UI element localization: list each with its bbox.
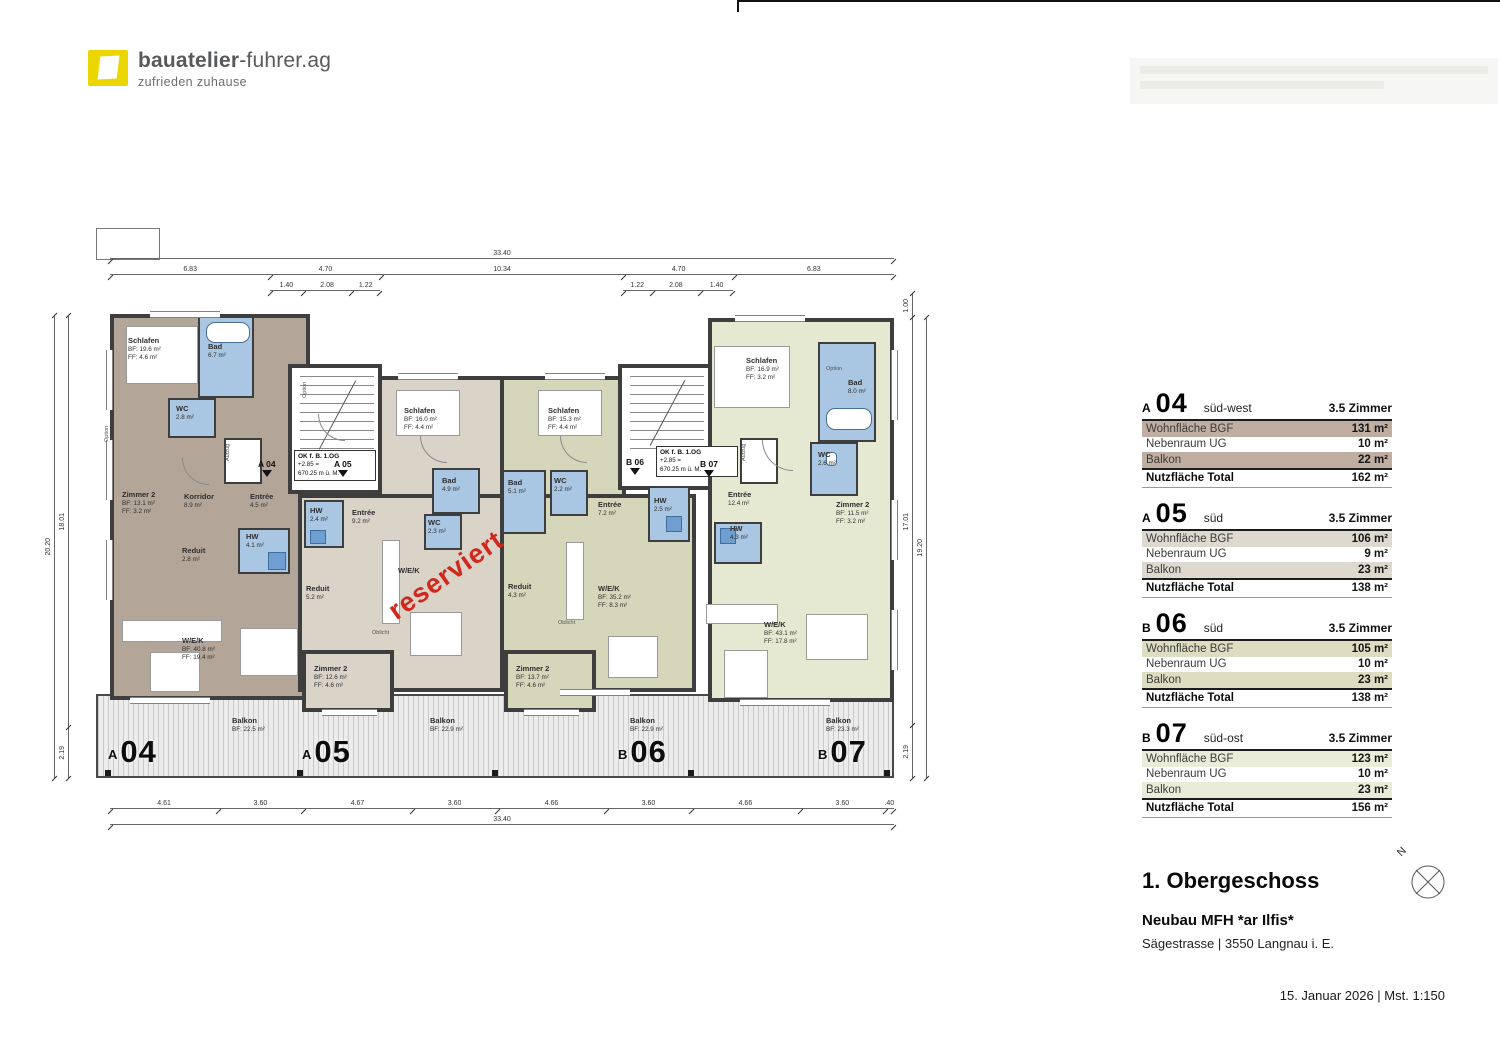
dim-segment: 4.70 [623,264,733,274]
row-label: Wohnfläche BGF [1146,533,1233,545]
marker-triangle-icon [338,470,348,477]
table-row-total: Nutzfläche Total138 m² [1142,688,1392,708]
logo-cube-icon [88,50,128,86]
dim-value: 6.83 [183,266,197,273]
dim-segment: 1.22 [623,280,652,290]
dim-value: 1.22 [359,282,373,289]
dim-value: 3.60 [836,800,850,807]
window [891,350,898,420]
table-row: Balkon23 m² [1142,562,1392,578]
unit-number: 06 [630,740,666,764]
dim-value: 4.70 [672,266,686,273]
dim-segment: 2.08 [303,280,352,290]
unit-number: 07 [830,740,866,764]
dining-table [150,652,200,692]
table-row: Nebenraum UG10 m² [1142,437,1392,453]
unit-prefix: B [818,747,827,762]
dim-value: 4.61 [157,800,171,807]
dim-segment: 1.40 [700,280,733,290]
dim-value: 10.34 [493,266,511,273]
row-value: 162 m² [1352,472,1388,484]
balcony-post [297,770,303,776]
table-row-total: Nutzfläche Total156 m² [1142,798,1392,818]
row-label: Nebenraum UG [1146,438,1227,450]
compass-icon [1406,860,1450,904]
dim-segment: 10.34 [381,264,624,274]
row-value: 156 m² [1352,802,1388,814]
bed-furniture [396,390,460,436]
row-label: Nebenraum UG [1146,548,1227,560]
bathtub-icon [826,408,872,430]
table-header: A 04 süd-west 3.5 Zimmer [1142,392,1392,421]
row-label: Nutzfläche Total [1146,582,1234,594]
dim-segment: 3.60 [218,798,303,808]
date-and-scale: 15. Januar 2026 | Mst. 1:150 [1280,988,1445,1003]
apt-rooms-count: 3.5 Zimmer [1329,401,1392,415]
dim-left-inner: 18.012.19 [58,316,69,778]
dim-value: .40 [884,800,894,807]
company-logo: bauatelier-fuhrer.ag zufrieden zuhause [88,50,331,89]
apt-orientation: süd-west [1204,401,1252,415]
window [524,709,579,716]
dim-segment: 2.08 [652,280,701,290]
table-row-total: Nutzfläche Total162 m² [1142,468,1392,488]
dim-segment: 4.66 [691,798,800,808]
bed-furniture [126,326,198,384]
apartment-table-a05: A 05 süd 3.5 Zimmer Wohnfläche BGF106 m²… [1142,502,1392,598]
bathtub-icon [206,322,250,343]
dim-segment: 4.70 [270,264,380,274]
apt-number: 06 [1156,612,1188,635]
balcony-post [105,770,111,776]
table-row-total: Nutzfläche Total138 m² [1142,578,1392,598]
table-header: B 07 süd-ost 3.5 Zimmer [1142,722,1392,751]
dim-segment: 20.20 [44,316,54,778]
room-a05-bad [432,468,480,514]
dim-segment: 1.00 [902,294,912,318]
row-value: 131 m² [1352,423,1388,435]
window [545,373,605,380]
dim-segment: 4.66 [497,798,606,808]
row-value: 22 m² [1358,454,1388,466]
dim-segment: 3.60 [800,798,885,808]
logo-brand-light: -fuhrer.ag [239,49,331,72]
dim-value: 1.00 [903,299,910,313]
sofa-furniture [240,628,298,676]
balcony-post [492,770,498,776]
dim-segment: 1.40 [270,280,303,290]
dim-value: 4.66 [739,800,753,807]
logo-brand-bold: bauatelier [138,49,239,72]
dim-bottom-total: 33.40 [110,814,894,825]
dim-segment: 19.20 [916,318,926,778]
marker-a04: A 04 [258,460,276,477]
row-label: Balkon [1146,674,1181,686]
kitchen-counter [566,542,584,620]
project-title: Neubau MFH *ar Ilfis* [1142,912,1294,929]
marker-label: A 05 [334,459,352,469]
row-value: 9 m² [1364,548,1388,560]
row-value: 105 m² [1352,643,1388,655]
dim-right-inner: 1.0017.012.19 [902,294,913,778]
room-b06-wc [550,470,588,516]
row-label: Wohnfläche BGF [1146,423,1233,435]
dim-segment: 2.19 [58,728,68,778]
dim-value: 3.60 [642,800,656,807]
dim-segment: 6.83 [110,264,270,274]
window [106,540,113,600]
appliance-icon [720,528,736,544]
faint-header-stamp [1130,58,1498,104]
unit-number: 05 [314,740,350,764]
table-row: Balkon23 m² [1142,672,1392,688]
apt-orientation: süd [1204,511,1223,525]
balcony-post [884,770,890,776]
row-value: 10 m² [1358,438,1388,450]
dim-value: 1.40 [280,282,294,289]
dim-segment: 33.40 [110,814,894,824]
appliance-icon [268,552,286,570]
dim-value: 20.20 [45,538,52,556]
dim-left-outer: 20.20 [44,316,55,778]
unit-label-b06: B06 [618,740,667,764]
apartment-table-a04: A 04 süd-west 3.5 Zimmer Wohnfläche BGF1… [1142,392,1392,488]
dim-segment: .40 [885,798,894,808]
unit-prefix: A [302,747,311,762]
kitchen-counter [122,620,222,642]
dim-value: 2.08 [320,282,334,289]
sheet-trim-line [737,0,1500,2]
window [150,311,220,318]
dim-value: 2.19 [903,745,910,759]
dim-segment: 4.67 [303,798,413,808]
row-label: Balkon [1146,784,1181,796]
dim-segment: 2.19 [902,726,912,778]
dim-top-total: 33.40 [110,248,894,259]
window [106,350,113,410]
dim-value: 4.70 [319,266,333,273]
marker-label: B 07 [700,459,718,469]
unit-number: 04 [120,740,156,764]
window [740,699,830,706]
table-row: Wohnfläche BGF123 m² [1142,751,1392,767]
row-value: 106 m² [1352,533,1388,545]
row-value: 23 m² [1358,564,1388,576]
dim-value: 3.60 [448,800,462,807]
marker-triangle-icon [262,470,272,477]
option-note: Option [826,366,842,372]
faint-text-bar [1140,81,1384,89]
dim-value: 1.22 [630,282,644,289]
drawing-sheet: bauatelier-fuhrer.ag zufrieden zuhause O… [0,0,1500,1060]
sofa-furniture [410,612,462,656]
table-header: B 06 süd 3.5 Zimmer [1142,612,1392,641]
row-label: Nebenraum UG [1146,658,1227,670]
table-row: Wohnfläche BGF131 m² [1142,421,1392,437]
marker-triangle-icon [704,470,714,477]
unit-a05-zimmer2-block [302,650,394,712]
ok-line: OK f. B. 1.OG [660,449,734,457]
dim-value: 3.60 [254,800,268,807]
dim-segment: 4.61 [110,798,218,808]
elevator-west: Aufzug [224,438,262,484]
dim-top-sub-right: 1.222.081.40 [623,280,733,291]
dim-value: 4.67 [351,800,365,807]
window [891,500,898,560]
row-label: Balkon [1146,454,1181,466]
unit-b06-zimmer2-block [504,650,596,712]
row-label: Nebenraum UG [1146,768,1227,780]
dim-right-outer: 19.20 [916,318,927,778]
window [106,440,113,500]
dim-value: 19.20 [917,539,924,557]
dining-table [724,650,768,698]
appliance-icon [310,530,326,544]
logo-text: bauatelier-fuhrer.ag zufrieden zuhause [138,50,331,89]
toilet-icon [826,452,837,466]
elevator-label: Aufzug [225,444,231,461]
stair-level-label-east: OK f. B. 1.OG +2.85 = 670.25 m ü. M. [656,446,738,477]
window [130,697,210,704]
row-value: 138 m² [1352,582,1388,594]
apt-rooms-count: 3.5 Zimmer [1329,621,1392,635]
row-label: Wohnfläche BGF [1146,643,1233,655]
dim-value: 33.40 [493,816,511,823]
row-value: 138 m² [1352,692,1388,704]
room-a05-wc [424,514,462,550]
window [322,709,377,716]
table-row: Balkon23 m² [1142,782,1392,798]
balcony-post [688,770,694,776]
unit-prefix: B [618,747,627,762]
dim-value: 2.08 [669,282,683,289]
room-b07-wc [810,442,858,496]
dim-segment: 6.83 [734,264,894,274]
apt-number: 05 [1156,502,1188,525]
logo-wordmark: bauatelier-fuhrer.ag [138,50,331,71]
unit-prefix: A [108,747,117,762]
dim-top-main: 6.834.7010.344.706.83 [110,264,894,275]
dim-segment: 33.40 [110,248,894,258]
sheet-trim-tick [737,0,739,12]
marker-b06: B 06 [626,458,644,475]
row-value: 123 m² [1352,753,1388,765]
dim-segment: 1.22 [351,280,380,290]
marker-a05: A 05 [334,460,352,477]
logo-tagline: zufrieden zuhause [138,75,331,89]
balcony-band [96,694,894,778]
dim-value: 4.66 [545,800,559,807]
bed-furniture [714,346,790,408]
dim-bottom-main: 4.613.604.673.604.663.604.663.60.40 [110,798,894,809]
room-a04-wc [168,398,216,438]
window [891,610,898,670]
sofa-furniture [806,614,868,660]
unit-label-a04: A04 [108,740,157,764]
table-header: A 05 süd 3.5 Zimmer [1142,502,1392,531]
dining-table [608,636,658,678]
table-row: Wohnfläche BGF106 m² [1142,531,1392,547]
floor-title: 1. Obergeschoss [1142,868,1319,894]
apt-number: 07 [1156,722,1188,745]
unit-label-a05: A05 [302,740,351,764]
row-label: Nutzfläche Total [1146,802,1234,814]
row-value: 23 m² [1358,674,1388,686]
marker-triangle-icon [630,468,640,475]
apt-prefix: A [1142,511,1151,525]
option-note: Option [104,426,110,442]
elevator-label: Aufzug [741,444,747,461]
apt-prefix: B [1142,621,1151,635]
bed-furniture [538,390,602,436]
north-compass: N [1406,860,1450,909]
row-value: 10 m² [1358,658,1388,670]
room-b06-hw [648,486,690,542]
dim-value: 6.83 [807,266,821,273]
marker-label: B 06 [626,457,644,467]
marker-label: A 04 [258,459,276,469]
apt-number: 04 [1156,392,1188,415]
dim-value: 17.01 [903,513,910,531]
dim-value: 1.40 [710,282,724,289]
table-row: Nebenraum UG10 m² [1142,657,1392,673]
stair-treads [630,376,704,450]
appliance-icon [666,516,682,532]
row-label: Nutzfläche Total [1146,692,1234,704]
row-label: Wohnfläche BGF [1146,753,1233,765]
row-label: Nutzfläche Total [1146,472,1234,484]
window [560,689,630,696]
apartment-table-b06: B 06 süd 3.5 Zimmer Wohnfläche BGF105 m²… [1142,612,1392,708]
row-label: Balkon [1146,564,1181,576]
oblicht-note: Oblicht [558,620,575,626]
marker-b07: B 07 [700,460,718,477]
dim-segment: 18.01 [58,316,68,728]
project-address: Sägestrasse | 3550 Langnau i. E. [1142,936,1334,951]
option-note: Option [302,382,308,398]
table-row: Nebenraum UG9 m² [1142,547,1392,563]
window [398,373,458,380]
unit-label-b07: B07 [818,740,867,764]
apartment-table-b07: B 07 süd-ost 3.5 Zimmer Wohnfläche BGF12… [1142,722,1392,818]
dim-value: 33.40 [493,250,511,257]
row-value: 10 m² [1358,768,1388,780]
ok-line: +2.85 = [660,457,734,465]
dim-value: 18.01 [59,513,66,531]
ok-line: 670.25 m ü. M. [660,466,734,474]
apt-orientation: süd [1204,621,1223,635]
apt-rooms-count: 3.5 Zimmer [1329,511,1392,525]
row-value: 23 m² [1358,784,1388,796]
dim-value: 2.19 [59,746,66,760]
apt-orientation: süd-ost [1204,731,1243,745]
stair-diagonal [650,380,686,446]
dim-top-sub-left: 1.402.081.22 [270,280,380,291]
apt-rooms-count: 3.5 Zimmer [1329,731,1392,745]
north-label: N [1395,845,1409,859]
table-row: Wohnfläche BGF105 m² [1142,641,1392,657]
logo-cube-cutout [98,56,120,80]
table-row: Balkon22 m² [1142,452,1392,468]
dim-segment: 3.60 [606,798,691,808]
apt-prefix: B [1142,731,1151,745]
table-row: Nebenraum UG10 m² [1142,767,1392,783]
window [735,315,805,322]
kitchen-counter [706,604,778,624]
faint-text-bar [1140,66,1488,74]
dim-segment: 3.60 [412,798,497,808]
dim-segment: 17.01 [902,318,912,726]
apt-prefix: A [1142,401,1151,415]
